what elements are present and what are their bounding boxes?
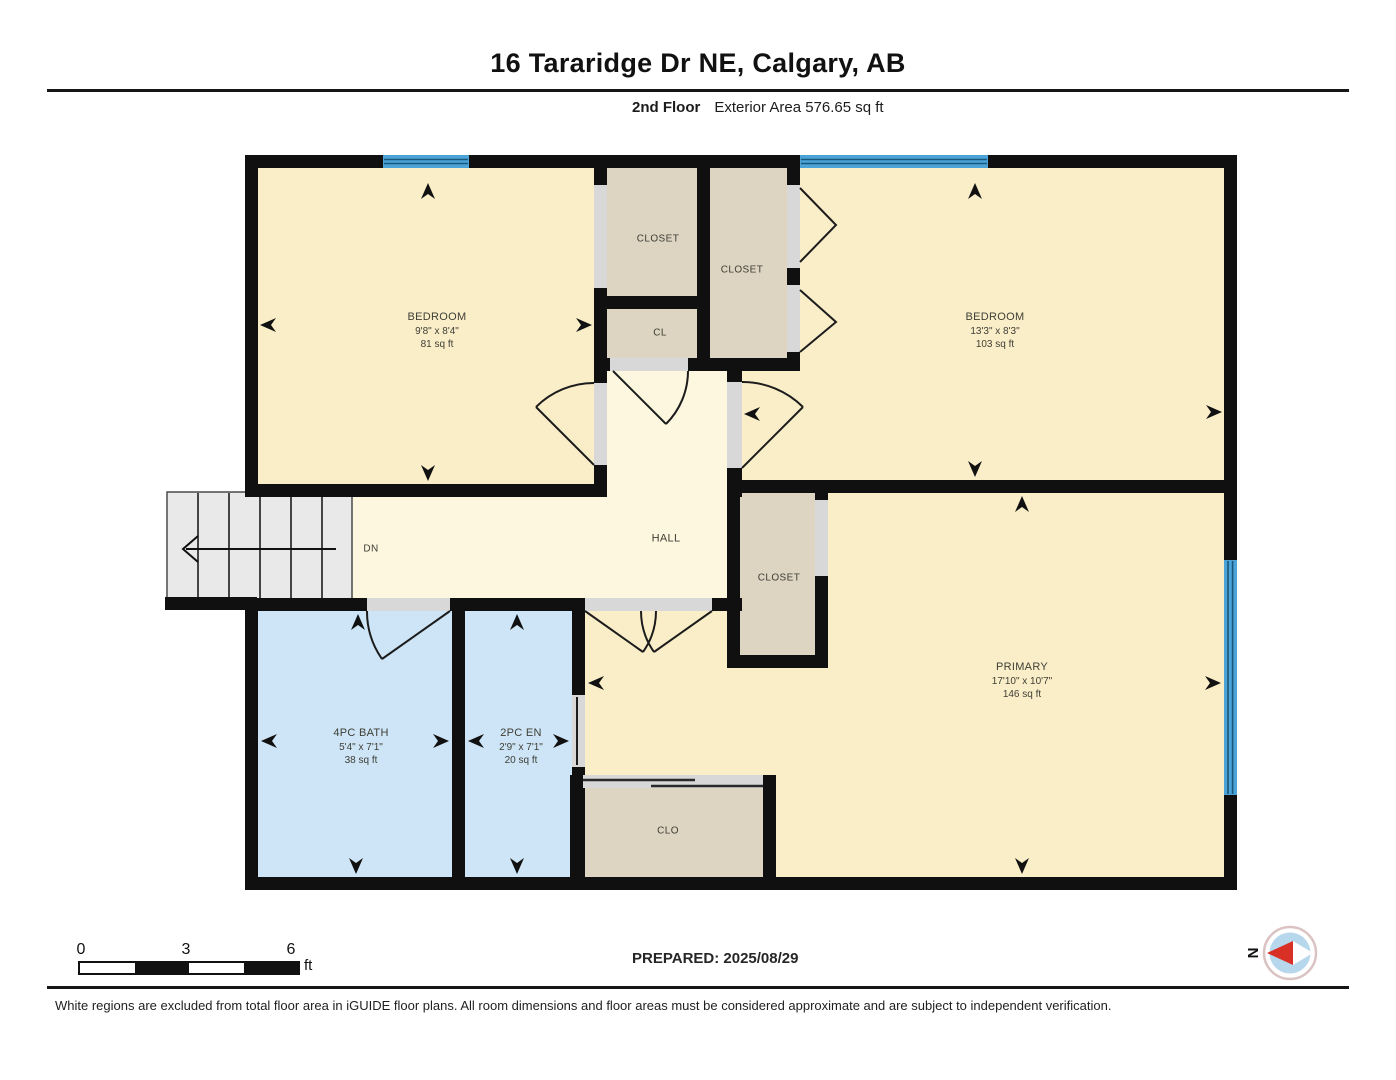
room-label-bath: 4PC BATH 5'4" x 7'1" 38 sq ft: [333, 726, 388, 768]
stairs: [167, 492, 352, 605]
room-label-bedroom-right: BEDROOM 13'3" x 8'3" 103 sq ft: [966, 310, 1025, 352]
scale-tick-3: 3: [182, 941, 191, 959]
floor-plan-page: 16 Tararidge Dr NE, Calgary, AB 2nd Floo…: [0, 0, 1396, 1080]
room-label-primary: PRIMARY 17'10" x 10'7" 146 sq ft: [992, 660, 1052, 702]
room-label-bedroom-left: BEDROOM 9'8" x 8'4" 81 sq ft: [408, 310, 467, 352]
room-label-closet-small: CL: [653, 326, 667, 340]
scale-tick-6: 6: [287, 941, 296, 959]
footer-divider: [47, 986, 1349, 989]
closet-primary-door-stop: [815, 576, 828, 588]
compass-north-label: N: [1245, 948, 1262, 959]
room-hall-upper-floor: [607, 371, 727, 497]
room-label-closet-top-left: CLOSET: [637, 232, 679, 246]
room-label-closet-primary: CLOSET: [758, 571, 800, 585]
room-closet-small-floor: [607, 309, 697, 358]
room-label-closet-top-right: CLOSET: [721, 263, 763, 277]
room-bedroom-right-entry-floor: [742, 368, 800, 480]
scale-unit-label: ft: [304, 957, 312, 974]
room-label-ensuite: 2PC EN 2'9" x 7'1" 20 sq ft: [499, 726, 543, 768]
window-bedroom-left: [383, 155, 469, 168]
window-primary: [1224, 560, 1237, 795]
disclaimer-text: White regions are excluded from total fl…: [55, 998, 1111, 1013]
room-hall-corridor-floor: [352, 497, 740, 598]
floor-plan-canvas: N: [0, 0, 1396, 1080]
room-label-stairs-dn: DN: [363, 542, 378, 556]
room-label-closet-bottom: CLO: [657, 824, 679, 838]
room-label-hall: HALL: [652, 532, 681, 547]
compass-icon: N: [1245, 927, 1316, 979]
window-bedroom-right: [800, 155, 988, 168]
prepared-date: PREPARED: 2025/08/29: [632, 950, 798, 967]
scale-tick-0: 0: [77, 941, 86, 959]
scale-bar: [78, 961, 300, 975]
